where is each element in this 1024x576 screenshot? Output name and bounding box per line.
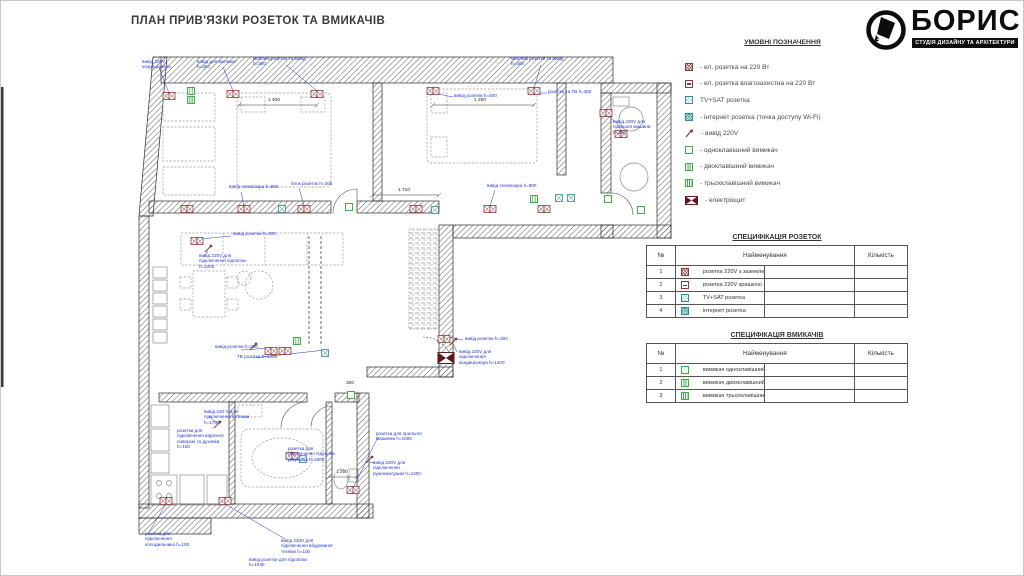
socket-symbol	[347, 487, 359, 494]
plan-annotation: вивід 220V для пральної машини h=200	[613, 119, 661, 135]
socket-symbol	[219, 498, 231, 505]
switch-symbol	[531, 196, 538, 203]
switch-symbol	[348, 392, 355, 399]
drawing-sheet: ПЛАН ПРИВ'ЯЗКИ РОЗЕТОК ТА ВМИКАЧІВ БОРИС…	[0, 0, 1024, 576]
plan-annotation: розетка та ТВ h=300	[548, 89, 592, 94]
dimension-lines	[237, 103, 536, 479]
tv-sat-symbol	[432, 207, 439, 214]
plan-annotation: вивід 220V для підключення рушникосушки …	[373, 460, 429, 476]
dimension-label: 1 250	[473, 98, 487, 103]
dimension-label: 1 400	[267, 98, 281, 103]
socket-symbol	[227, 91, 239, 98]
plan-annotation: вивід для витяжки h=300	[197, 59, 243, 70]
plan-annotation: розетка для підключення підсвітки дзерка…	[288, 446, 340, 462]
tv-sat-symbol	[568, 195, 575, 202]
plan-annotation: меблеві розетки та вивід h=300	[253, 56, 309, 67]
plan-annotation: вивід 220V кондиціонера	[142, 59, 184, 70]
socket-symbol	[181, 206, 193, 213]
socket-symbol	[484, 206, 496, 213]
switch-symbol	[294, 338, 301, 345]
tv-sat-symbol	[279, 206, 286, 213]
socket-symbol	[538, 206, 550, 213]
socket-symbol	[528, 88, 540, 95]
plan-annotation: блок розеток h=300	[291, 181, 335, 186]
switch-symbol	[346, 204, 353, 211]
socket-symbol	[191, 238, 203, 245]
socket-symbol	[600, 110, 612, 117]
fixtures	[151, 97, 648, 505]
floor-plan	[1, 1, 1024, 576]
plan-annotation: розетка для підключення холодильника h=1…	[145, 531, 191, 547]
dimension-label: 300	[345, 381, 355, 386]
socket-symbol	[311, 91, 323, 98]
plan-annotation: ТВ розетка h=1400	[237, 354, 279, 359]
plan-annotation: розетки для підключення варочної поверхн…	[177, 428, 225, 450]
tv-sat-symbol	[556, 195, 563, 202]
electrical-panel-symbol	[438, 353, 454, 364]
socket-symbol	[163, 93, 175, 100]
outlet-lead-symbol	[205, 245, 212, 252]
plan-annotation: меблеві розетки та вивід h=300	[511, 56, 567, 67]
sheet-edge-mark	[1, 87, 4, 387]
dimension-label: 1 200	[335, 470, 349, 475]
switch-symbol	[638, 207, 645, 214]
plan-annotation: вивід розетки h=300	[465, 336, 513, 341]
plan-annotation: вивід розетки h=300	[215, 344, 259, 349]
plan-annotation: вивід 220V для підключення вбудованої те…	[281, 538, 337, 554]
socket-symbol	[279, 348, 291, 355]
plan-annotation: вивід розетки h=300	[233, 231, 283, 236]
socket-symbol	[298, 206, 310, 213]
plan-annotation: вивід розетки для підсвітки h=1040	[249, 557, 307, 568]
plan-annotation: вивід 220V для підключення кондиціонера …	[459, 349, 513, 365]
switch-symbol	[188, 97, 195, 104]
socket-symbol	[238, 206, 250, 213]
plan-annotation: вивід телевізора h=900	[229, 184, 279, 189]
socket-symbol	[160, 498, 172, 505]
dimension-label: 1 710	[397, 188, 411, 193]
partition	[309, 236, 321, 346]
plan-annotation: вивід телевізора h=900	[487, 183, 537, 188]
tv-sat-symbol	[322, 350, 329, 357]
switch-symbol	[605, 196, 612, 203]
wardrobe	[409, 229, 439, 329]
socket-symbol	[438, 336, 450, 343]
plan-annotation: вивід 220 V для підключення витяжки h=17…	[204, 409, 250, 425]
plan-annotation: вивід 220V для підключення підсвітки h=2…	[199, 253, 249, 269]
socket-symbol	[410, 206, 422, 213]
switch-symbol	[188, 88, 195, 95]
socket-symbol	[427, 88, 439, 95]
plan-annotation: розетка для пральної машинки h=1000	[376, 431, 428, 442]
